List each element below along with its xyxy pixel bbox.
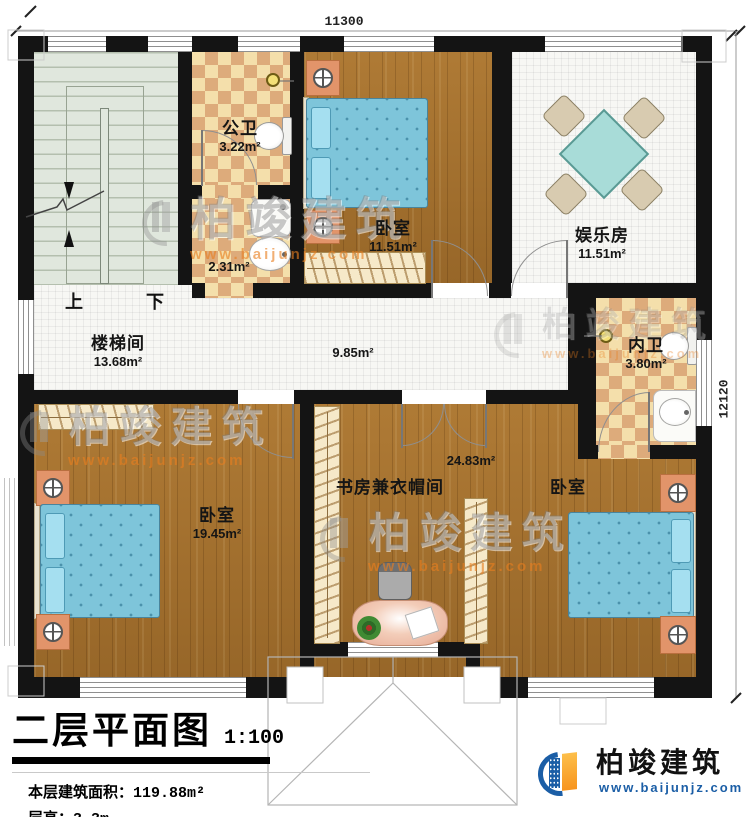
pillow [311, 107, 331, 149]
room-label-corridor: 9.85m² [332, 345, 373, 360]
wardrobe [314, 406, 340, 644]
nightstand [660, 616, 696, 654]
bedside-lamp-icon [43, 478, 63, 498]
wall-segment [466, 642, 480, 677]
room-label-bath-lobby: 2.31m² [208, 259, 249, 274]
dimension-height: 12120 [717, 379, 732, 418]
room-label-study: 书房兼衣帽间 [336, 478, 444, 498]
room-label-bedroom-left: 卧室 19.45m² [193, 506, 241, 541]
window [48, 36, 106, 52]
wall-segment [300, 642, 314, 698]
bedside-lamp-icon [43, 622, 63, 642]
room-label-study-area: 24.83m² [447, 453, 495, 468]
window [80, 677, 246, 698]
room-label-ensuite-bath: 内卫 3.80m² [625, 336, 666, 371]
bed-sheet [337, 99, 381, 207]
bedside-lamp-icon [313, 217, 333, 237]
wardrobe [38, 404, 154, 430]
nightstand [306, 60, 340, 96]
stair-rail [100, 108, 109, 284]
room-label-entertainment: 娱乐房 11.51m² [575, 226, 629, 261]
room-label-public-bath: 公卫 3.22m² [219, 119, 260, 154]
bedside-lamp-icon [668, 625, 688, 645]
wall-segment [300, 390, 314, 642]
title-underline [12, 757, 270, 764]
window [148, 36, 192, 52]
floor-area-row: 本层建筑面积：119.88m² [12, 781, 412, 802]
room-label-stairwell: 楼梯间 13.68m² [91, 334, 145, 369]
door-opening [205, 283, 253, 298]
title-block: 二层平面图1:100 本层建筑面积：119.88m² 层高：3.3m [12, 700, 412, 817]
baijun-logo-icon [538, 748, 588, 798]
plan-title: 二层平面图 [12, 710, 212, 751]
bedside-lamp-icon [313, 68, 333, 88]
pillow [311, 157, 331, 199]
bed [568, 512, 694, 618]
door-leaf [401, 404, 403, 448]
nightstand [36, 614, 70, 650]
dimension-width: 11300 [324, 14, 363, 29]
window [545, 36, 681, 52]
sink [659, 398, 691, 426]
door-leaf [485, 404, 487, 448]
window [238, 36, 300, 52]
ceiling-light-icon [599, 329, 613, 343]
nightstand [306, 210, 340, 244]
bed [40, 504, 160, 618]
wardrobe [464, 498, 488, 644]
window [18, 300, 34, 374]
washing-machine [251, 199, 291, 237]
room-label-bedroom-top: 卧室 11.51m² [369, 219, 417, 254]
floor-plan: 11300 12120 上 下 公卫 3.22m² 2.31m² 卧室 11.5… [0, 0, 750, 817]
pillow [45, 567, 65, 613]
door-opening [202, 185, 258, 199]
door-leaf [292, 404, 294, 459]
door-opening [402, 390, 486, 404]
wall-segment [290, 36, 304, 298]
window [344, 36, 434, 52]
plant [357, 616, 381, 640]
brand-company: 柏竣建筑 [596, 748, 743, 779]
plan-scale: 1:100 [224, 727, 284, 750]
bed-sheet [611, 513, 654, 617]
wall-segment [178, 36, 192, 285]
pillow [671, 569, 691, 613]
nightstand [36, 470, 70, 506]
wall-segment [568, 283, 596, 404]
wall-segment [492, 36, 512, 283]
brand-logo: 柏竣建筑 www.baijunjz.com [538, 748, 743, 798]
floor-height-row: 层高：3.3m [12, 807, 412, 817]
room-label-bedroom-right: 卧室 [550, 478, 586, 498]
nightstand [660, 474, 696, 512]
door-leaf [648, 392, 650, 452]
ceiling-light-icon [266, 73, 280, 87]
stair-down-label: 下 [146, 288, 164, 314]
brand-website: www.baijunjz.com [596, 780, 743, 795]
door-leaf [566, 240, 568, 298]
window [528, 677, 654, 698]
window [696, 340, 712, 426]
door-opening [238, 390, 294, 404]
pillow [45, 513, 65, 559]
pillow [671, 519, 691, 563]
wardrobe [304, 252, 426, 284]
door-leaf [201, 130, 203, 186]
title-divider [12, 772, 370, 773]
bed-sheet [67, 505, 111, 617]
door-leaf [431, 240, 433, 298]
bed [306, 98, 428, 208]
bedside-lamp-icon [668, 483, 688, 503]
desk-chair [378, 562, 412, 600]
stair-up-label: 上 [65, 288, 83, 314]
sink [249, 237, 291, 271]
window-sill [4, 478, 16, 646]
